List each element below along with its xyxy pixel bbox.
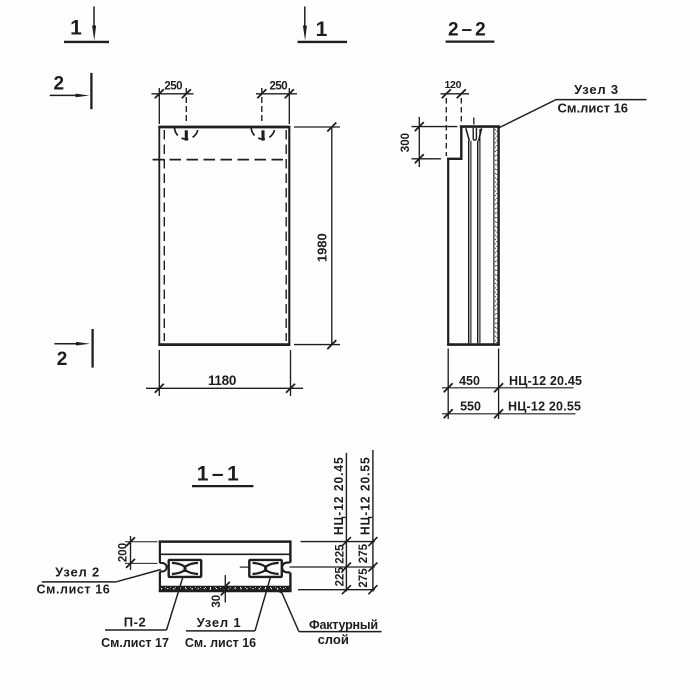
- svg-text:550: 550: [460, 400, 481, 414]
- svg-text:120: 120: [444, 79, 461, 91]
- svg-text:450: 450: [459, 374, 480, 388]
- svg-text:2: 2: [54, 74, 65, 95]
- svg-text:250: 250: [269, 81, 287, 93]
- svg-text:200: 200: [117, 543, 129, 562]
- svg-text:НЦ-12 20.55: НЦ-12 20.55: [508, 400, 581, 414]
- svg-text:300: 300: [400, 133, 412, 152]
- svg-text:30: 30: [211, 595, 223, 608]
- svg-text:275: 275: [358, 568, 370, 588]
- svg-text:НЦ-12 20.45: НЦ-12 20.45: [332, 456, 346, 535]
- svg-text:1: 1: [316, 18, 328, 41]
- svg-text:слой: слой: [318, 632, 349, 647]
- svg-text:См. лист 16: См. лист 16: [185, 636, 256, 650]
- svg-text:Узел 3: Узел 3: [574, 82, 619, 97]
- svg-text:1–1: 1–1: [197, 463, 243, 486]
- svg-text:П-2: П-2: [124, 615, 146, 630]
- svg-text:225: 225: [334, 567, 346, 587]
- svg-text:Узел 2: Узел 2: [55, 565, 100, 580]
- svg-text:См.лист 16: См.лист 16: [558, 101, 629, 116]
- svg-text:Фактурный: Фактурный: [309, 618, 378, 632]
- svg-text:1180: 1180: [208, 373, 236, 388]
- svg-text:275: 275: [358, 543, 370, 563]
- svg-text:250: 250: [164, 81, 182, 93]
- svg-text:См.лист 17: См.лист 17: [101, 636, 169, 650]
- svg-text:НЦ-12 20.45: НЦ-12 20.45: [509, 374, 582, 388]
- svg-text:См.лист 16: См.лист 16: [36, 583, 110, 597]
- svg-text:НЦ-12 20.55: НЦ-12 20.55: [358, 456, 372, 535]
- svg-text:Узел 1: Узел 1: [197, 615, 242, 630]
- svg-text:2: 2: [57, 349, 68, 370]
- svg-text:225: 225: [334, 544, 346, 564]
- svg-text:2–2: 2–2: [448, 20, 489, 41]
- svg-text:1: 1: [70, 17, 82, 40]
- svg-text:1980: 1980: [314, 233, 329, 262]
